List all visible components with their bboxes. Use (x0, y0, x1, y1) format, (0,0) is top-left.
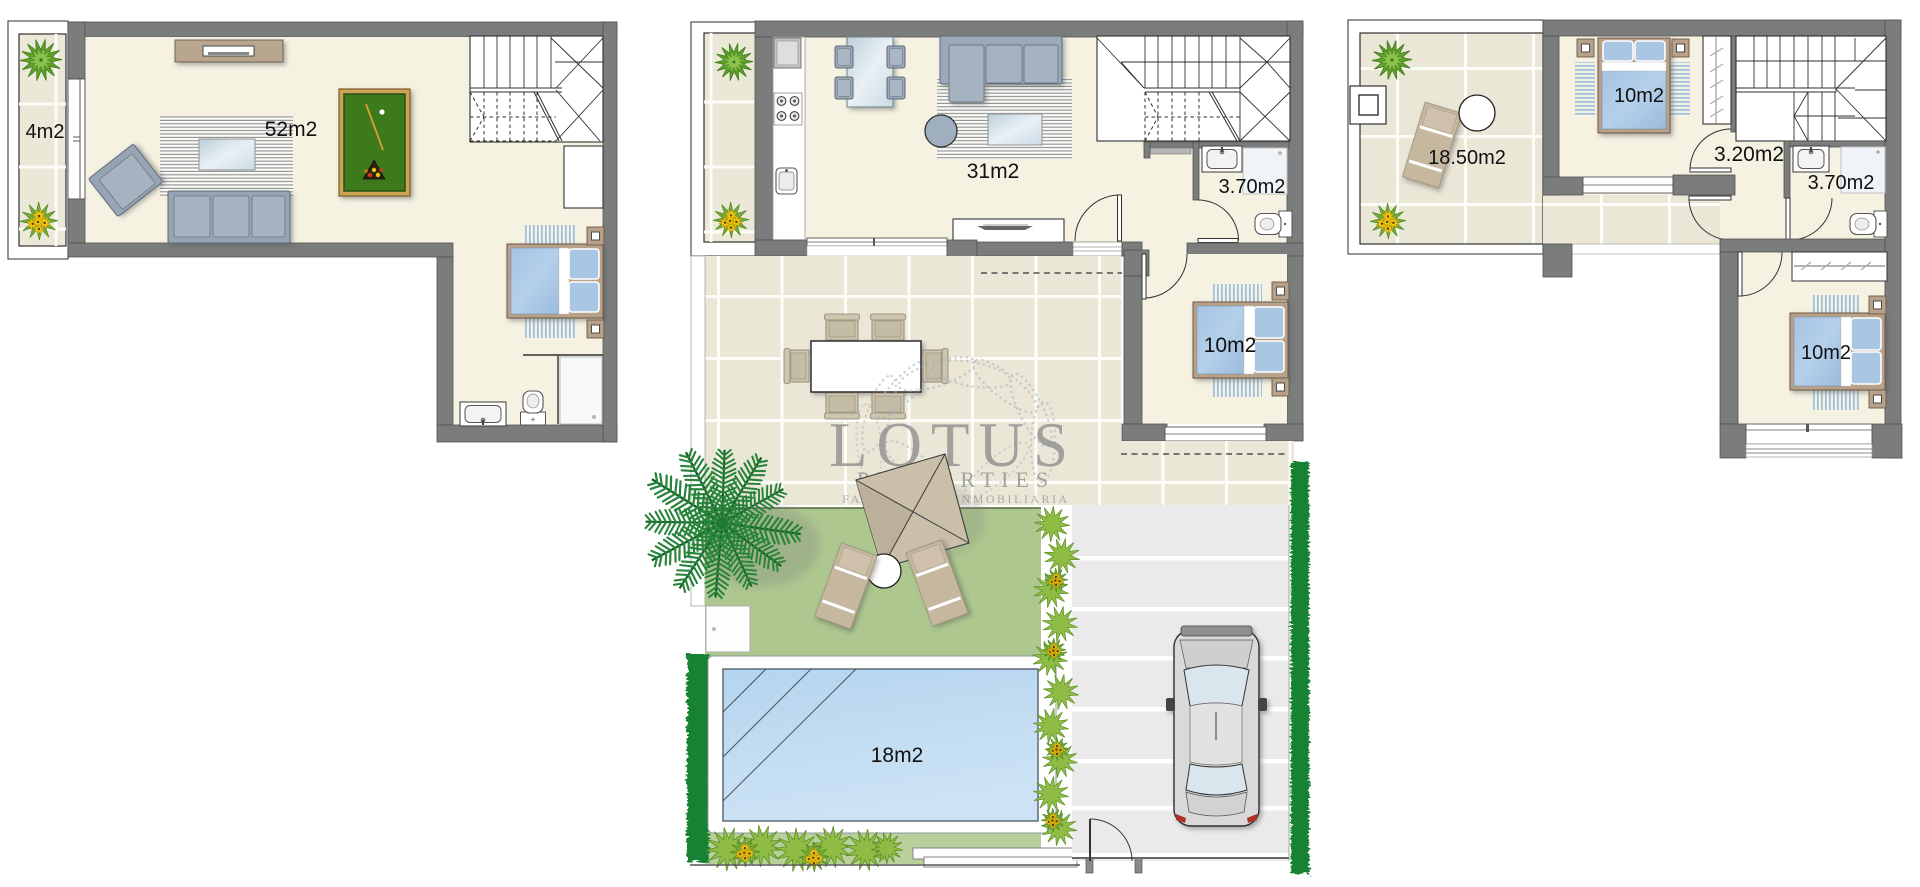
svg-text:10m2: 10m2 (1801, 342, 1851, 364)
svg-text:18m2: 18m2 (871, 744, 924, 767)
svg-text:10m2: 10m2 (1614, 85, 1664, 107)
svg-text:52m2: 52m2 (265, 118, 318, 141)
svg-text:18.50m2: 18.50m2 (1428, 147, 1506, 169)
svg-text:4m2: 4m2 (26, 121, 65, 143)
svg-text:3.70m2: 3.70m2 (1808, 172, 1875, 194)
svg-text:3.20m2: 3.20m2 (1714, 143, 1784, 166)
svg-text:10m2: 10m2 (1204, 334, 1257, 357)
svg-text:3.70m2: 3.70m2 (1219, 176, 1286, 198)
svg-text:31m2: 31m2 (967, 160, 1020, 183)
svg-text:+: + (531, 415, 536, 424)
